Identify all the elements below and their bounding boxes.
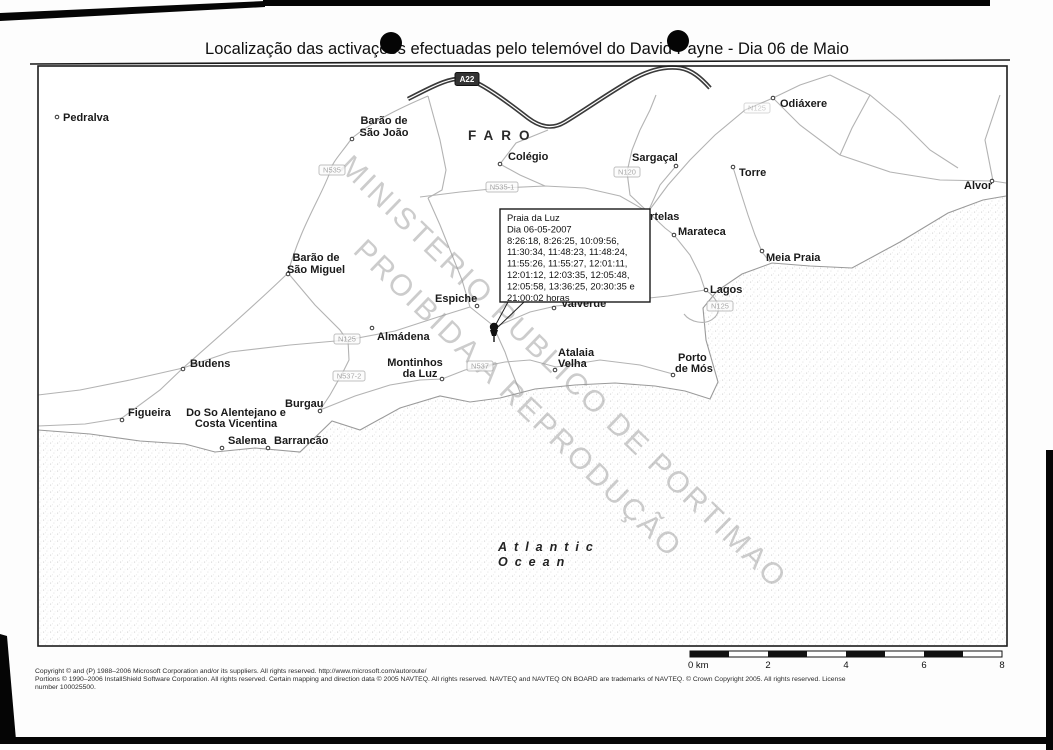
road-shield: N125	[334, 334, 360, 344]
place-marker	[760, 249, 764, 253]
road-shield-label: A22	[460, 75, 475, 84]
place-marker	[672, 233, 676, 237]
place-label: Figueira	[128, 407, 172, 419]
place-label: Almádena	[377, 331, 430, 343]
road-shield: N120	[614, 167, 640, 177]
place-label: Barrancão	[274, 435, 329, 447]
road-shield-label: N125	[711, 302, 729, 311]
place-label: Barão de	[360, 115, 407, 127]
scale-label: 0 km	[688, 660, 709, 671]
place-marker	[674, 164, 678, 168]
page-title: Localização das activações efectuadas pe…	[205, 40, 849, 58]
place-marker	[120, 418, 124, 422]
place-marker	[55, 115, 59, 119]
place-marker	[181, 367, 185, 371]
place-label: Barão de	[292, 252, 339, 264]
place-label: de Mós	[675, 363, 713, 375]
copyright-line: Portions © 1990–2006 InstallShield Softw…	[35, 675, 846, 683]
place-label: Salema	[228, 435, 267, 447]
callout-box: Praia da Luz Dia 06-05-2007 8:26:18, 8:2…	[500, 209, 650, 303]
place-marker	[553, 368, 557, 372]
place-label: Marateca	[678, 226, 727, 238]
road-shield-a22: A22	[455, 73, 479, 86]
copyright-line: Copyright © and (P) 1988–2006 Microsoft …	[35, 667, 427, 675]
road-shield: N535	[319, 165, 345, 175]
road-shield-label: N125	[748, 104, 766, 113]
place-label: Lagos	[710, 284, 742, 296]
place-label: Sargaçal	[632, 152, 678, 164]
callout-line: 12:05:58, 13:36:25, 20:30:35 e	[507, 280, 635, 291]
place-label: Odiáxere	[780, 98, 827, 110]
road-shield-label: N535	[323, 166, 341, 175]
place-label: da Luz	[403, 368, 438, 380]
scan-edge-top	[263, 0, 990, 6]
place-label: Pedralva	[63, 112, 110, 124]
place-marker	[370, 326, 374, 330]
road-shield: N537-2	[333, 371, 365, 381]
place-label: Colégio	[508, 151, 549, 163]
place-label: Costa Vicentina	[195, 418, 278, 430]
place-label: Meia Praia	[766, 252, 821, 264]
place-marker	[266, 446, 270, 450]
place-label: São Miguel	[287, 264, 345, 276]
road-shield-label: N537	[471, 362, 489, 371]
hole-punch-icon	[667, 30, 689, 52]
place-marker	[220, 446, 224, 450]
callout-line: 11:55:26, 11:55:27, 12:01:11,	[507, 258, 627, 269]
place-marker	[771, 96, 775, 100]
scale-label: 6	[921, 660, 926, 671]
callout-line: Praia da Luz	[507, 212, 560, 223]
place-label: Budens	[190, 358, 230, 370]
ocean-label-line-1: Atlantic	[497, 540, 600, 554]
road-shield: N535-1	[486, 182, 518, 192]
place-label: Velha	[558, 358, 588, 370]
copyright-line: number 100025500.	[35, 684, 96, 691]
place-label: São João	[360, 127, 409, 139]
place-label: Alvor	[964, 180, 993, 192]
place-marker	[440, 377, 444, 381]
road-shield-label: N537-2	[337, 372, 362, 381]
callout-line: 8:26:18, 8:26:25, 10:09:56,	[507, 235, 619, 246]
road-shield: N125	[744, 103, 770, 113]
place-label: Burgau	[285, 398, 324, 410]
scale-label: 2	[765, 660, 770, 671]
place-marker	[704, 288, 708, 292]
scale-label: 8	[999, 660, 1004, 671]
place-marker	[552, 306, 556, 310]
place-marker	[498, 162, 502, 166]
road-shield-label: N125	[338, 335, 356, 344]
road-shield-label: N120	[618, 168, 636, 177]
ocean-label-line-2: Ocean	[498, 555, 571, 569]
scale-label: 4	[843, 660, 848, 671]
scan-edge-bottom	[0, 737, 1053, 744]
place-marker	[350, 137, 354, 141]
callout-line: 11:30:34, 11:48:23, 11:48:24,	[507, 246, 627, 257]
map-canvas: MINISTERIO PUBLICO DE PORTIMAO PROIBIDA …	[0, 0, 1053, 750]
place-label: Espiche	[435, 293, 477, 305]
district-label: FARO	[468, 128, 538, 143]
road-shield: N125	[707, 301, 733, 311]
road-shield-label: N535-1	[490, 183, 515, 192]
place-label: Torre	[739, 167, 766, 179]
road-shield: N537	[467, 361, 493, 371]
callout-line: 21:00:02 horas	[507, 292, 570, 303]
callout-line: Dia 06-05-2007	[507, 223, 572, 234]
scan-edge-right	[1046, 450, 1053, 750]
place-marker	[731, 165, 735, 169]
hole-punch-icon	[380, 32, 402, 54]
scanned-map-page: MINISTERIO PUBLICO DE PORTIMAO PROIBIDA …	[0, 0, 1053, 750]
callout-line: 12:01:12, 12:03:35, 12:05:48,	[507, 269, 630, 280]
